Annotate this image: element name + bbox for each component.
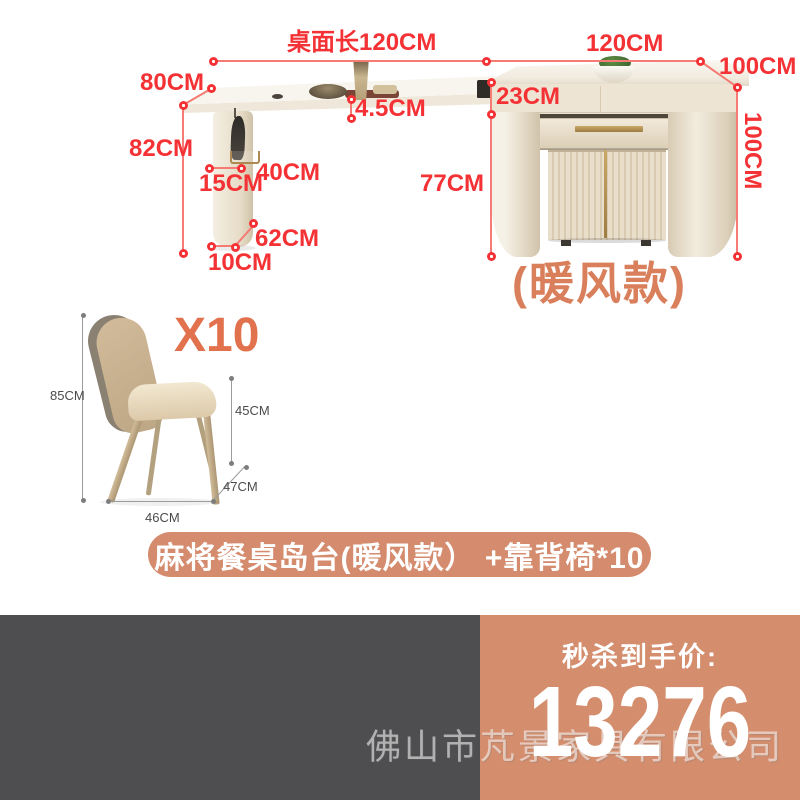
price-value: 13276 — [529, 672, 751, 772]
table-outlet — [272, 94, 283, 99]
dim-table-height-label: 82CM — [129, 137, 193, 161]
island-left-column — [491, 112, 540, 257]
dimension-dot — [487, 110, 496, 119]
chair-seat — [127, 381, 217, 422]
dim-island-height-label: 100CM — [740, 112, 764, 189]
chair-seat-height-label: 45CM — [235, 404, 270, 417]
island-right-column — [668, 112, 738, 257]
bottom-left-panel — [0, 615, 480, 800]
dim-drawer-height-label: 23CM — [496, 85, 560, 109]
dim-leg-width-label: 40CM — [256, 161, 320, 185]
small-plate — [373, 85, 397, 94]
dim-table-depth-label: 80CM — [140, 71, 204, 95]
dim-line-table-height — [182, 105, 184, 253]
chair-dim-dot — [106, 499, 111, 504]
chair-width-label: 46CM — [145, 511, 180, 524]
chair-quantity-label: X10 — [174, 312, 259, 360]
dimension-dot — [487, 252, 496, 261]
dim-line-under-clearance — [490, 114, 492, 256]
chair-dim-line-width — [108, 501, 213, 502]
chair-dim-dot — [229, 461, 234, 466]
variant-label: (暖风款) — [512, 261, 687, 306]
chair-dim-dot — [81, 313, 86, 318]
price-value-wrap: 13276 — [480, 672, 800, 772]
dim-island-width-label: 120CM — [586, 32, 663, 56]
island-fluted-doors — [548, 150, 666, 240]
dimension-dot — [179, 101, 188, 110]
bowl — [309, 84, 347, 99]
dimension-dot — [487, 78, 496, 87]
dim-table-length-label: 桌面长120CM — [287, 31, 436, 55]
island-drawer-divider — [600, 86, 601, 113]
dimension-dot — [696, 57, 705, 66]
chair-height-label: 85CM — [50, 389, 85, 402]
chair-floor-shadow — [100, 498, 220, 506]
dimension-dot — [733, 252, 742, 261]
dimension-dot — [733, 83, 742, 92]
chair-dim-dot — [244, 465, 249, 470]
chair-dim-line-height — [82, 315, 83, 500]
dim-leg-depth-label: 62CM — [255, 227, 319, 251]
chair-dim-dot — [81, 498, 86, 503]
dimension-dot — [209, 57, 218, 66]
product-poster: 桌面长120CM 120CM 100CM 100CM 80CM 82CM 15C… — [0, 0, 800, 800]
dim-leg-offset-label: 15CM — [199, 172, 263, 196]
island-foot-right — [641, 240, 651, 246]
dim-island-depth-label: 100CM — [719, 55, 796, 79]
dim-top-thickness-label: 4.5CM — [355, 97, 426, 121]
chair-seat-depth-label: 47CM — [223, 480, 258, 493]
dimension-dot — [179, 249, 188, 258]
island-foot-left — [561, 240, 571, 246]
dim-leg-thickness-label: 10CM — [208, 251, 272, 275]
dim-line-island-height — [736, 87, 738, 256]
dimension-dot — [482, 57, 491, 66]
product-name-text: 麻将餐桌岛台(暖风款） +靠背椅*10 — [155, 533, 645, 577]
dimension-dot — [207, 84, 216, 93]
chair-dim-line-seat-height — [231, 378, 232, 463]
fluted-gold-strip — [604, 150, 607, 238]
drawer-handle — [575, 126, 643, 132]
dim-line-table-length — [213, 60, 700, 62]
dim-under-clearance-label: 77CM — [420, 172, 484, 196]
chair-dim-dot — [211, 499, 216, 504]
product-name-banner: 麻将餐桌岛台(暖风款） +靠背椅*10 — [148, 532, 651, 577]
chair-dim-dot — [229, 376, 234, 381]
